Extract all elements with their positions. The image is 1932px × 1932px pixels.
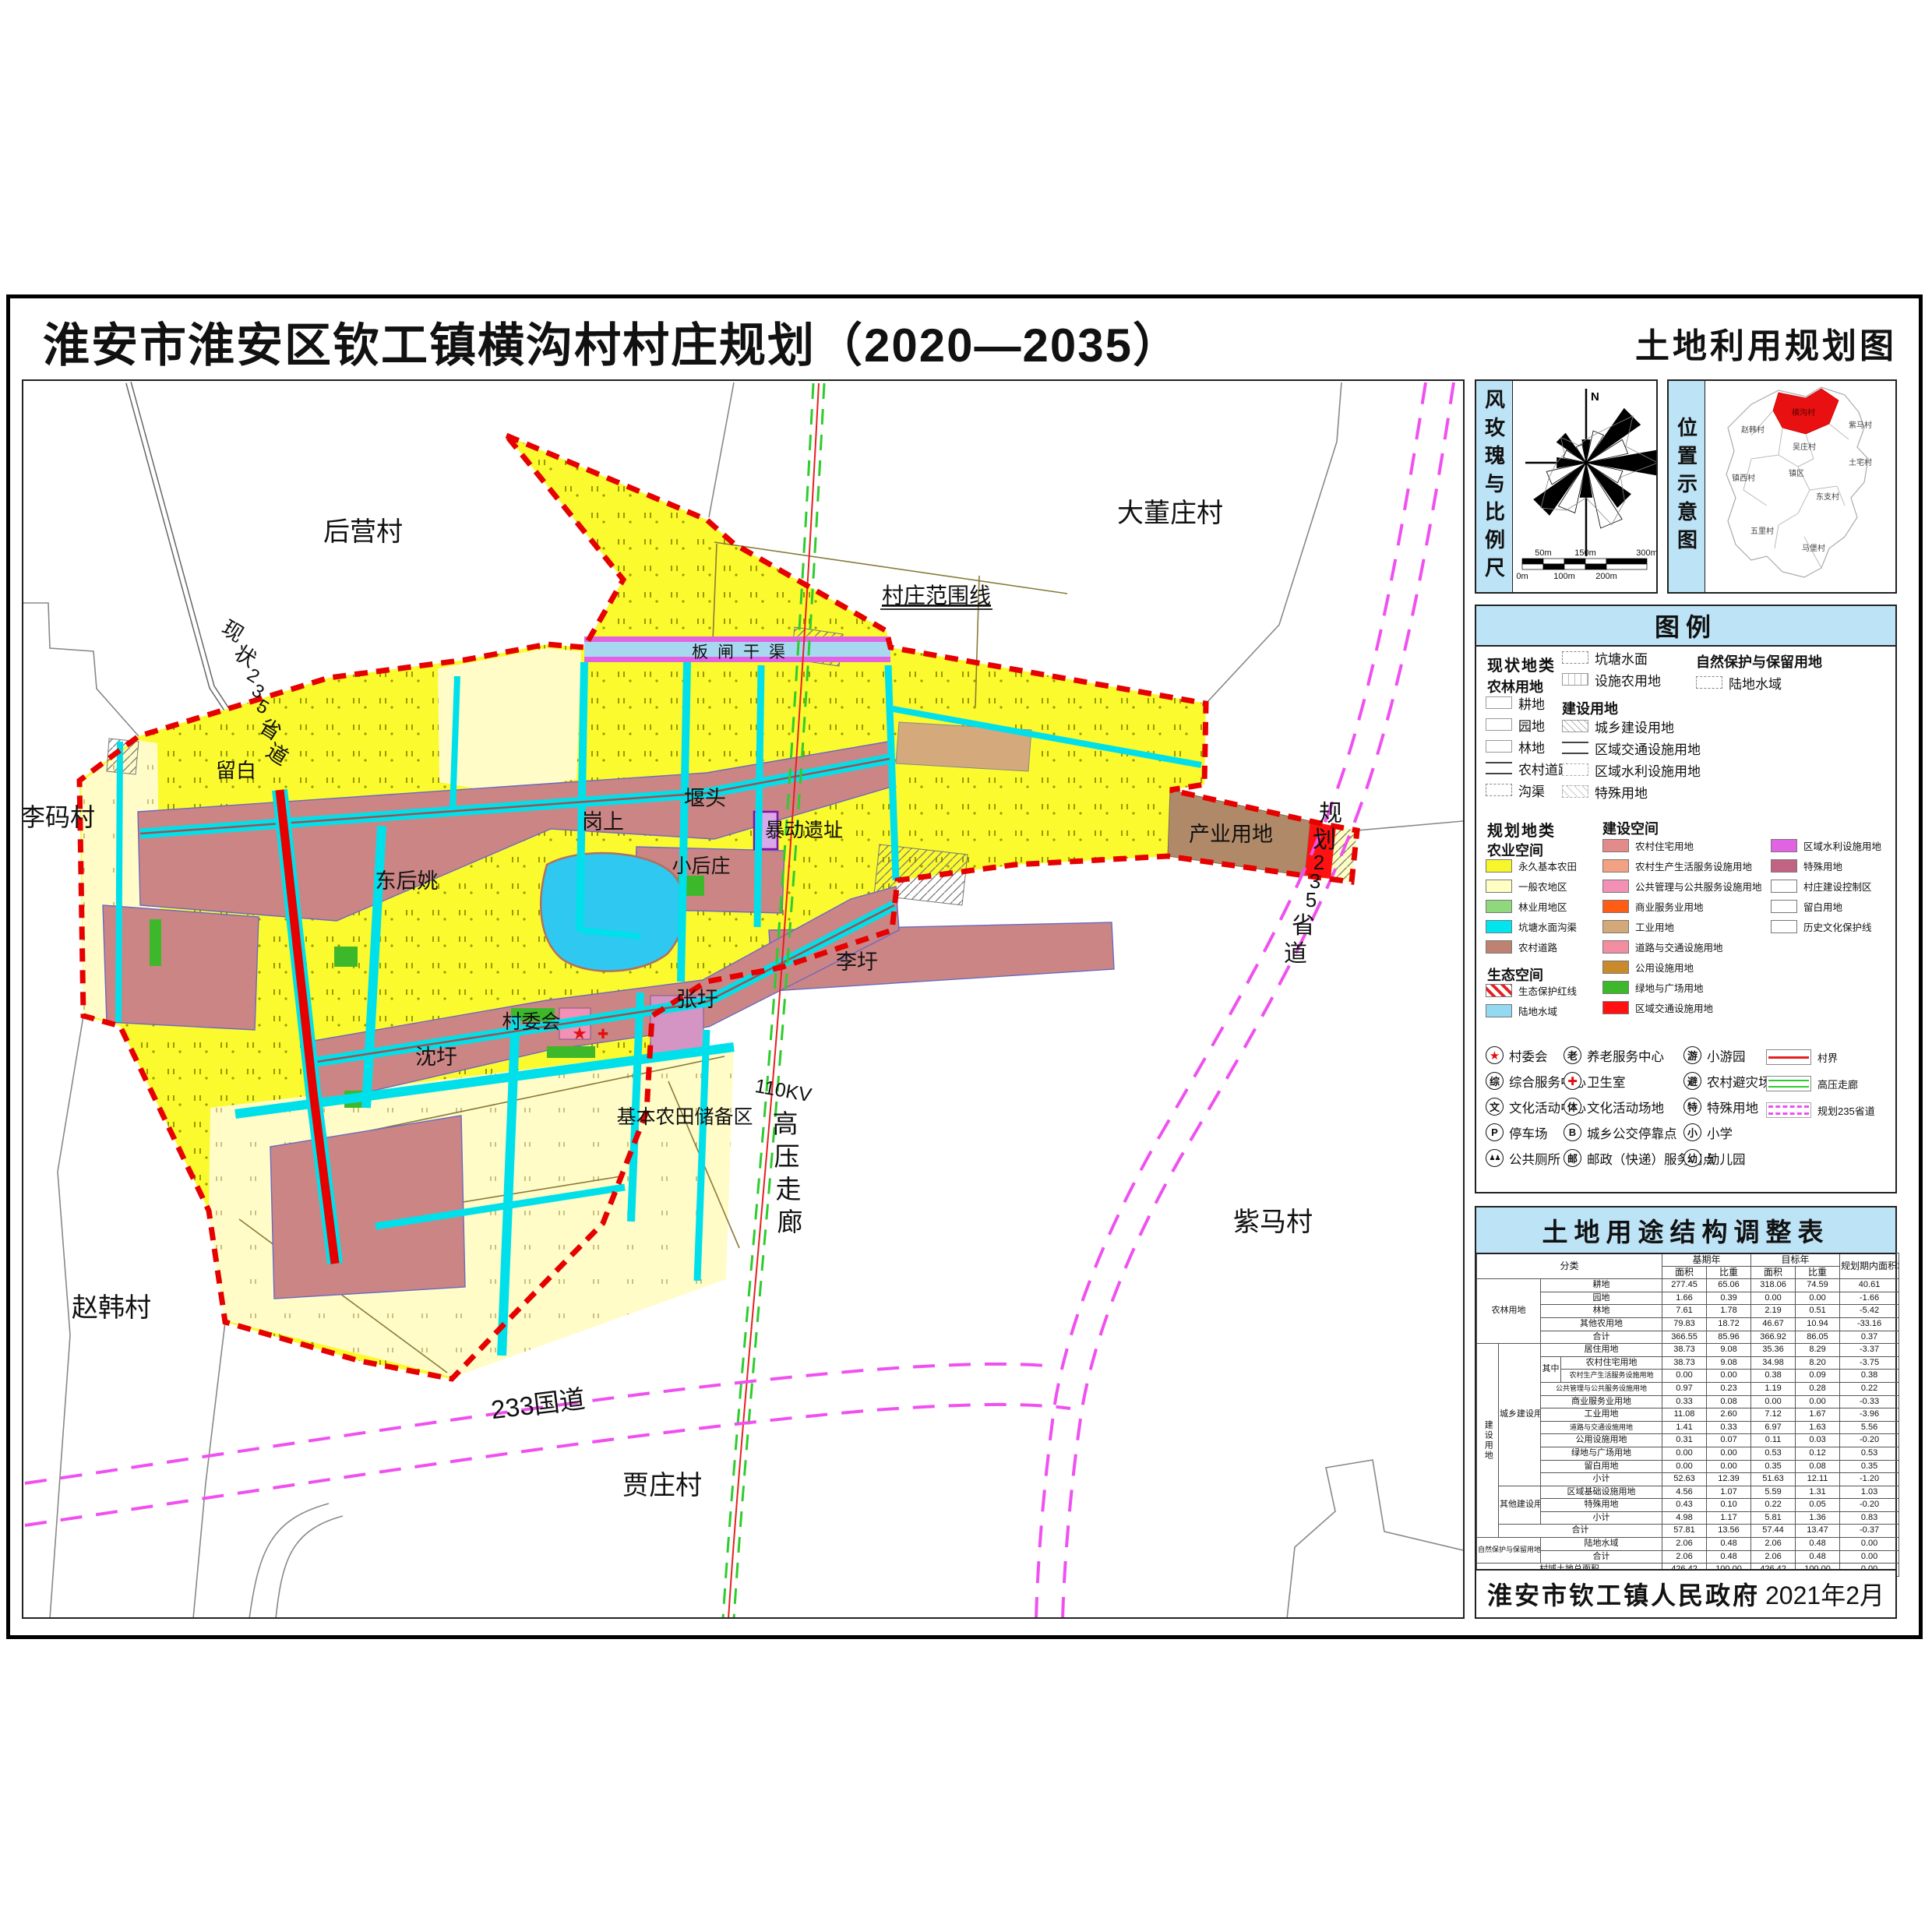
- table-row: 其中农村住宅用地38.739.0834.988.20-3.75: [1477, 1356, 1899, 1370]
- legend-swatch: [1562, 742, 1588, 754]
- symbol-label: 幼儿园: [1707, 1149, 1746, 1168]
- location-village-label: 东支村: [1816, 492, 1839, 502]
- location-village-label: 横沟村: [1792, 407, 1815, 418]
- map-label: 压: [774, 1142, 800, 1171]
- svg-text:150m: 150m: [1574, 548, 1596, 558]
- location-village-label: 吴庄村: [1793, 442, 1816, 452]
- legend-swatch: [1602, 859, 1629, 873]
- legend-label: 区域水利设施用地: [1803, 838, 1881, 853]
- svg-text:100m: 100m: [1553, 572, 1575, 581]
- table-row: 建设用地城乡建设用地居住用地38.739.0835.368.29-3.37: [1477, 1344, 1899, 1357]
- legend-item: 坑塘水面: [1562, 650, 1661, 665]
- table-row: 道路与交通设施用地1.410.336.971.635.56: [1477, 1421, 1899, 1434]
- legend-item: 农村住宅用地: [1602, 838, 1762, 852]
- table-row: 其他建设用地区域基础设施用地4.561.075.591.311.03: [1477, 1486, 1899, 1499]
- legend-swatch: [1486, 718, 1512, 731]
- 小学-icon: 小: [1683, 1123, 1701, 1141]
- table-row: 农林用地耕地277.4565.06318.0674.5940.61: [1477, 1279, 1899, 1292]
- map-label: 233国道: [489, 1384, 587, 1424]
- map-label: 板闸干渠: [692, 643, 795, 661]
- map-label: 暴动遗址: [765, 820, 843, 841]
- map-label: 留白: [216, 759, 256, 782]
- symbol-label: 城乡公交停靠点: [1587, 1123, 1677, 1142]
- 文化活动场地-icon: 体: [1564, 1098, 1581, 1116]
- legend-item: 沟渠: [1486, 782, 1571, 798]
- 幼儿园-icon: 幼: [1683, 1149, 1701, 1167]
- legend-swatch: [1771, 920, 1797, 933]
- legend-swatch: [1486, 984, 1512, 997]
- legend-swatch: [1486, 762, 1512, 774]
- legend-symbol-item: 幼幼儿园: [1683, 1148, 1784, 1168]
- legend-swatch: [1771, 839, 1797, 852]
- symbol-label: 特殊用地: [1707, 1098, 1758, 1116]
- map-label: 李圩: [836, 950, 878, 974]
- symbol-label: 公共厕所: [1509, 1149, 1560, 1168]
- land-use-map: ★ ✚ 后营村大董庄村村庄范围线板闸干渠留白李码村东后姚岗上堰头暴动遗址小后庄李…: [23, 381, 1463, 1617]
- legend-swatch: [1562, 651, 1588, 664]
- map-panel: ★ ✚ 后营村大董庄村村庄范围线板闸干渠留白李码村东后姚岗上堰头暴动遗址小后庄李…: [22, 379, 1465, 1619]
- legend-label: 一般农地区: [1518, 879, 1567, 894]
- legend-swatch: [1602, 900, 1629, 913]
- legend-label: 设施农用地: [1595, 670, 1661, 689]
- 农村避灾场所-icon: 避: [1683, 1072, 1701, 1090]
- map-label: 走: [776, 1175, 802, 1204]
- legend-item: 道路与交通设施用地: [1602, 940, 1762, 954]
- windrose-panel: 风玫瑰与比例尺 N 50m150m300m0m100m200m: [1475, 379, 1658, 594]
- table-row: 小计4.981.175.811.360.83: [1477, 1511, 1899, 1525]
- land-use-table: 分类基期年目标年规划期内面积增减面积比重面积比重农林用地耕地277.4565.0…: [1476, 1253, 1899, 1577]
- legend-swatch: [1486, 920, 1512, 933]
- legend-swatch: [1486, 784, 1512, 796]
- line-label: 高压走廊: [1817, 1077, 1858, 1091]
- village-area: [79, 435, 1357, 1379]
- sec-jianshe: 建设用地: [1562, 698, 1618, 718]
- legend-item: 区域水利设施用地: [1562, 762, 1701, 777]
- table-row: 绿地与广场用地0.000.000.530.120.53: [1477, 1447, 1899, 1460]
- footer-date: 2021年2月: [1765, 1576, 1884, 1612]
- legend-item: 坑塘水面沟渠: [1486, 919, 1577, 933]
- legend-item: 特殊用地: [1771, 858, 1881, 873]
- legend-swatch: [1486, 740, 1512, 753]
- location-map: 横沟村赵韩村紫马村吴庄村土宅村镇西村镇区东支村五里村马堡村: [1705, 381, 1895, 592]
- footer: 淮安市钦工镇人民政府 2021年2月: [1475, 1569, 1897, 1619]
- legend-item: 农村道路: [1486, 760, 1571, 776]
- table-title: 土地用途结构调整表: [1476, 1207, 1895, 1254]
- 村委会-icon: ★: [1486, 1046, 1504, 1064]
- page-title: 淮安市淮安区钦工镇横沟村村庄规划（2020—2035）: [43, 308, 1181, 375]
- table-row: 合计57.8113.5657.4413.47-0.37: [1477, 1525, 1899, 1538]
- map-label: 紫马村: [1233, 1207, 1313, 1237]
- legend-label: 园地: [1518, 715, 1545, 735]
- legend-line-item: 高压走廊: [1766, 1074, 1875, 1094]
- map-label: 岗上: [582, 810, 624, 834]
- legend-item: 区域水利设施用地: [1771, 838, 1881, 852]
- legend-item: 商业服务业用地: [1602, 899, 1762, 913]
- legend-item: 生态保护红线: [1486, 983, 1577, 997]
- legend-item: 永久基本农田: [1486, 858, 1577, 873]
- legend-swatch: [1602, 981, 1629, 994]
- legend-swatch: [1562, 785, 1588, 798]
- legend-item: 区域交通设施用地: [1562, 740, 1701, 756]
- legend-label: 留白用地: [1803, 899, 1842, 914]
- committee-star-icon: ★: [572, 1024, 587, 1043]
- legend-swatch: [1602, 839, 1629, 852]
- legend-item: 特殊用地: [1562, 784, 1701, 799]
- legend-label: 公用设施用地: [1635, 960, 1694, 975]
- location-village-label: 五里村: [1750, 526, 1774, 536]
- legend-swatch: [1602, 880, 1629, 893]
- legend-label: 村庄建设控制区: [1803, 879, 1872, 894]
- map-label: 李码村: [23, 803, 95, 831]
- legend-swatch: [1562, 673, 1588, 686]
- legend-label: 陆地水域: [1518, 1003, 1557, 1018]
- legend-label: 陆地水域: [1729, 673, 1782, 693]
- pond: [541, 853, 685, 971]
- symbol-label: 小学: [1707, 1123, 1733, 1142]
- legend-swatch: [1602, 1001, 1629, 1014]
- symbol-label: 小游园: [1707, 1046, 1746, 1065]
- legend-item: 留白用地: [1771, 899, 1881, 913]
- legend-label: 商业服务业用地: [1635, 899, 1704, 914]
- table-row: 公共管理与公共服务设施用地0.970.231.190.280.22: [1477, 1382, 1899, 1395]
- legend-swatch: [1486, 900, 1512, 913]
- 卫生室-icon: ✚: [1564, 1072, 1581, 1090]
- windrose-panel-label: 风玫瑰与比例尺: [1476, 381, 1513, 592]
- table-row: 留白用地0.000.000.350.080.35: [1477, 1460, 1899, 1473]
- svg-text:50m: 50m: [1535, 548, 1551, 558]
- legend-swatch: [1696, 676, 1722, 689]
- planned-235-road: [1036, 383, 1454, 1617]
- legend-label: 生态保护红线: [1518, 983, 1577, 998]
- location-panel: 位置示意图 横沟村赵韩村紫马村吴庄村土宅村镇西村镇区东支村五里村马堡村: [1667, 379, 1897, 594]
- legend-label: 绿地与广场用地: [1635, 980, 1704, 995]
- legend-swatch: [1602, 920, 1629, 933]
- symbol-label: 卫生室: [1587, 1072, 1626, 1091]
- symbol-label: 养老服务中心: [1587, 1046, 1664, 1065]
- scale-bar: 50m150m300m0m100m200m: [1516, 548, 1656, 581]
- legend-label: 特殊用地: [1595, 782, 1648, 802]
- legend-item: 公共管理与公共服务设施用地: [1602, 879, 1762, 893]
- legend-item: 陆地水域: [1696, 675, 1782, 690]
- map-label: 道: [1284, 941, 1307, 967]
- map-label: 规: [1319, 801, 1342, 827]
- map-label: 基本农田储备区: [616, 1106, 753, 1128]
- location-village-label: 赵韩村: [1741, 425, 1765, 435]
- map-label: 村庄范围线: [882, 583, 991, 608]
- legend-label: 耕地: [1518, 693, 1545, 713]
- legend-item: 区域交通设施用地: [1602, 1000, 1762, 1014]
- 综合服务中心-icon: 综: [1486, 1072, 1504, 1090]
- sec-plan: 规划地类: [1487, 818, 1556, 841]
- legend-swatch: [1771, 880, 1797, 893]
- legend-swatch: [1771, 900, 1797, 913]
- 邮政（快递）服务网点-icon: 邮: [1564, 1149, 1581, 1167]
- legend-header: 图例: [1476, 606, 1895, 647]
- legend-swatch: [1562, 763, 1588, 776]
- table-row: 园地1.660.390.000.00-1.66: [1477, 1292, 1899, 1305]
- legend-line-item: 村界: [1766, 1047, 1875, 1067]
- map-label: 村委会: [502, 1011, 560, 1033]
- 养老服务中心-icon: 老: [1564, 1046, 1581, 1064]
- 城乡公交停靠点-icon: B: [1564, 1123, 1581, 1141]
- table-row: 合计366.5585.96366.9286.050.37: [1477, 1331, 1899, 1344]
- map-label: 高: [773, 1109, 799, 1138]
- map-label: 东后姚: [375, 869, 439, 893]
- legend-item: 林地: [1486, 739, 1571, 754]
- adjustment-table-panel: 土地用途结构调整表 分类基期年目标年规划期内面积增减面积比重面积比重农林用地耕地…: [1475, 1206, 1897, 1571]
- legend-swatch: [1486, 859, 1512, 873]
- location-village-label: 紫马村: [1849, 420, 1872, 430]
- sec-build: 建设空间: [1602, 818, 1659, 838]
- legend-panel: 图例 现状地类 农林用地 耕地园地林地农村道路沟渠 坑塘水面设施农用地 建设用地…: [1475, 605, 1897, 1193]
- map-label: 后营村: [323, 517, 403, 547]
- legend-line-item: 规划235省道: [1766, 1100, 1875, 1120]
- band-west: [103, 905, 259, 1030]
- legend-label: 坑塘水面: [1595, 648, 1648, 668]
- legend-label: 工业用地: [1635, 919, 1674, 934]
- legend-label: 坑塘水面沟渠: [1518, 919, 1577, 934]
- legend-item: 农村道路: [1486, 940, 1577, 954]
- location-village-label: 马堡村: [1802, 543, 1825, 553]
- legend-label: 农村住宅用地: [1635, 838, 1694, 853]
- legend-item: 陆地水域: [1486, 1003, 1577, 1017]
- svg-text:0m: 0m: [1516, 572, 1528, 581]
- map-label: 小后庄: [672, 855, 730, 877]
- 停车场-icon: P: [1486, 1123, 1504, 1141]
- legend-label: 特殊用地: [1803, 858, 1842, 873]
- legend-label: 区域水利设施用地: [1595, 760, 1701, 780]
- map-label: 贾庄村: [622, 1471, 702, 1500]
- legend-item: 林业用地区: [1486, 899, 1577, 913]
- location-village-label: 土宅村: [1849, 457, 1872, 467]
- 高压走廊-line-swatch: [1766, 1076, 1811, 1091]
- 村界-line-swatch: [1766, 1049, 1811, 1065]
- north-label: N: [1591, 390, 1599, 404]
- map-label: 沈圩: [415, 1045, 457, 1069]
- map-label: 堰头: [684, 787, 726, 810]
- legend-swatch: [1562, 720, 1588, 732]
- legend-swatch: [1771, 859, 1797, 873]
- legend-label: 永久基本农田: [1518, 858, 1577, 873]
- table-row: 其他农用地79.8318.7246.6710.94-33.16: [1477, 1317, 1899, 1331]
- legend-item: 农村生产生活服务设施用地: [1602, 858, 1762, 873]
- sec-eco: 生态空间: [1487, 964, 1543, 985]
- 公共厕所-icon: ♟♟: [1486, 1149, 1504, 1167]
- footer-organization: 淮安市钦工镇人民政府: [1487, 1576, 1760, 1612]
- windrose-figure: N 50m150m300m0m100m200m: [1512, 381, 1656, 592]
- 规划235省道-line-swatch: [1766, 1102, 1811, 1118]
- map-label: 5: [1306, 888, 1317, 911]
- map-label: 划: [1313, 827, 1336, 853]
- svg-text:300m: 300m: [1636, 548, 1656, 558]
- location-panel-label: 位置示意图: [1669, 381, 1705, 592]
- table-row: 自然保护与保留用地陆地水域2.060.482.060.480.00: [1477, 1538, 1899, 1551]
- legend-label: 沟渠: [1518, 781, 1545, 800]
- table-row: 小计52.6312.3951.6312.11-1.20: [1477, 1473, 1899, 1486]
- legend-item: 设施农用地: [1562, 672, 1661, 687]
- legend-label: 历史文化保护线: [1803, 919, 1872, 934]
- line-label: 村界: [1817, 1050, 1838, 1065]
- map-label: 赵韩村: [72, 1293, 151, 1323]
- legend-item: 园地: [1486, 717, 1571, 732]
- map-label: 110KV: [753, 1075, 813, 1106]
- legend-swatch: [1602, 961, 1629, 974]
- legend-label: 林业用地区: [1518, 899, 1567, 914]
- legend-item: 绿地与广场用地: [1602, 980, 1762, 994]
- legend-swatch: [1486, 940, 1512, 954]
- location-village-label: 镇区: [1789, 468, 1804, 478]
- table-row: 商业服务业用地0.330.080.000.00-0.33: [1477, 1395, 1899, 1408]
- legend-item: 公用设施用地: [1602, 960, 1762, 974]
- map-label: 省: [1292, 913, 1315, 939]
- legend-label: 农村道路: [1518, 940, 1557, 954]
- map-label: 产业用地: [1189, 823, 1273, 846]
- table-row: 分类基期年目标年规划期内面积增减: [1477, 1253, 1899, 1267]
- legend-item: 耕地: [1486, 695, 1571, 710]
- legend-label: 林地: [1518, 737, 1545, 756]
- legend-swatch: [1602, 940, 1629, 954]
- sheet-subtitle: 土地利用规划图: [1585, 318, 1897, 368]
- legend-swatch: [1486, 696, 1512, 709]
- legend-label: 公共管理与公共服务设施用地: [1635, 879, 1762, 894]
- legend-swatch: [1486, 880, 1512, 893]
- map-label: 大董庄村: [1117, 499, 1223, 528]
- sec-nature: 自然保护与保留用地: [1696, 651, 1822, 672]
- 小游园-icon: 游: [1683, 1046, 1701, 1064]
- clinic-cross-icon: ✚: [598, 1027, 608, 1042]
- sec-agri: 农业空间: [1487, 840, 1543, 860]
- legend-label: 农村生产生活服务设施用地: [1635, 858, 1752, 873]
- legend-item: 工业用地: [1602, 919, 1762, 933]
- sec-current: 现状地类: [1487, 653, 1556, 675]
- legend-swatch: [1486, 1004, 1512, 1017]
- legend-label: 道路与交通设施用地: [1635, 940, 1723, 954]
- band-southwest-block: [270, 1116, 465, 1299]
- legend-item: 城乡建设用地: [1562, 718, 1701, 734]
- 文化活动中心-icon: 文: [1486, 1098, 1504, 1116]
- map-label: 廊: [777, 1207, 803, 1236]
- legend-item: 村庄建设控制区: [1771, 879, 1881, 893]
- svg-text:200m: 200m: [1595, 572, 1617, 581]
- legend-label: 区域交通设施用地: [1635, 1000, 1713, 1015]
- symbol-label: 停车场: [1509, 1123, 1548, 1142]
- legend-item: 一般农地区: [1486, 879, 1577, 893]
- legend-label: 城乡建设用地: [1595, 717, 1674, 736]
- legend-label: 区域交通设施用地: [1595, 739, 1701, 758]
- symbol-label: 文化活动场地: [1587, 1098, 1664, 1116]
- legend-item: 历史文化保护线: [1771, 919, 1881, 933]
- location-village-label: 镇西村: [1732, 473, 1755, 483]
- table-row: 林地7.611.782.190.51-5.42: [1477, 1305, 1899, 1318]
- map-label: 张圩: [676, 988, 718, 1011]
- table-row: 公用设施用地0.310.070.110.03-0.20: [1477, 1434, 1899, 1447]
- 特殊用地-icon: 特: [1683, 1098, 1701, 1116]
- symbol-label: 村委会: [1509, 1046, 1548, 1065]
- line-label: 规划235省道: [1817, 1103, 1875, 1118]
